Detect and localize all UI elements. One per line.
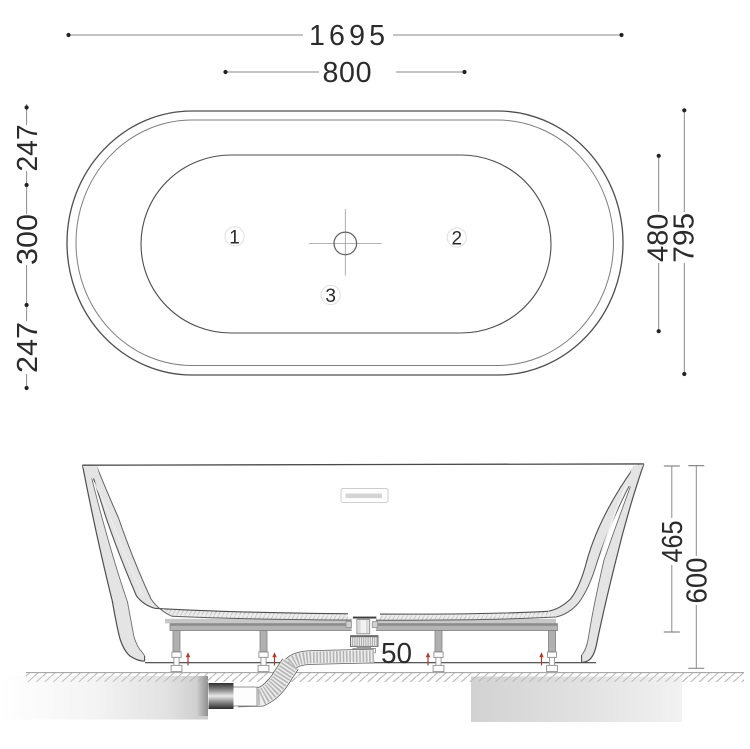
svg-text:50: 50	[381, 638, 412, 670]
svg-text:600: 600	[682, 558, 714, 604]
svg-text:300: 300	[12, 214, 44, 265]
svg-text:1695: 1695	[309, 20, 385, 52]
svg-text:1: 1	[229, 227, 240, 248]
svg-text:2: 2	[452, 229, 463, 250]
svg-text:247: 247	[12, 322, 44, 373]
svg-text:465: 465	[657, 521, 689, 563]
svg-text:247: 247	[12, 125, 44, 172]
svg-text:800: 800	[323, 57, 372, 89]
svg-text:795: 795	[669, 213, 701, 263]
svg-text:3: 3	[325, 286, 336, 307]
